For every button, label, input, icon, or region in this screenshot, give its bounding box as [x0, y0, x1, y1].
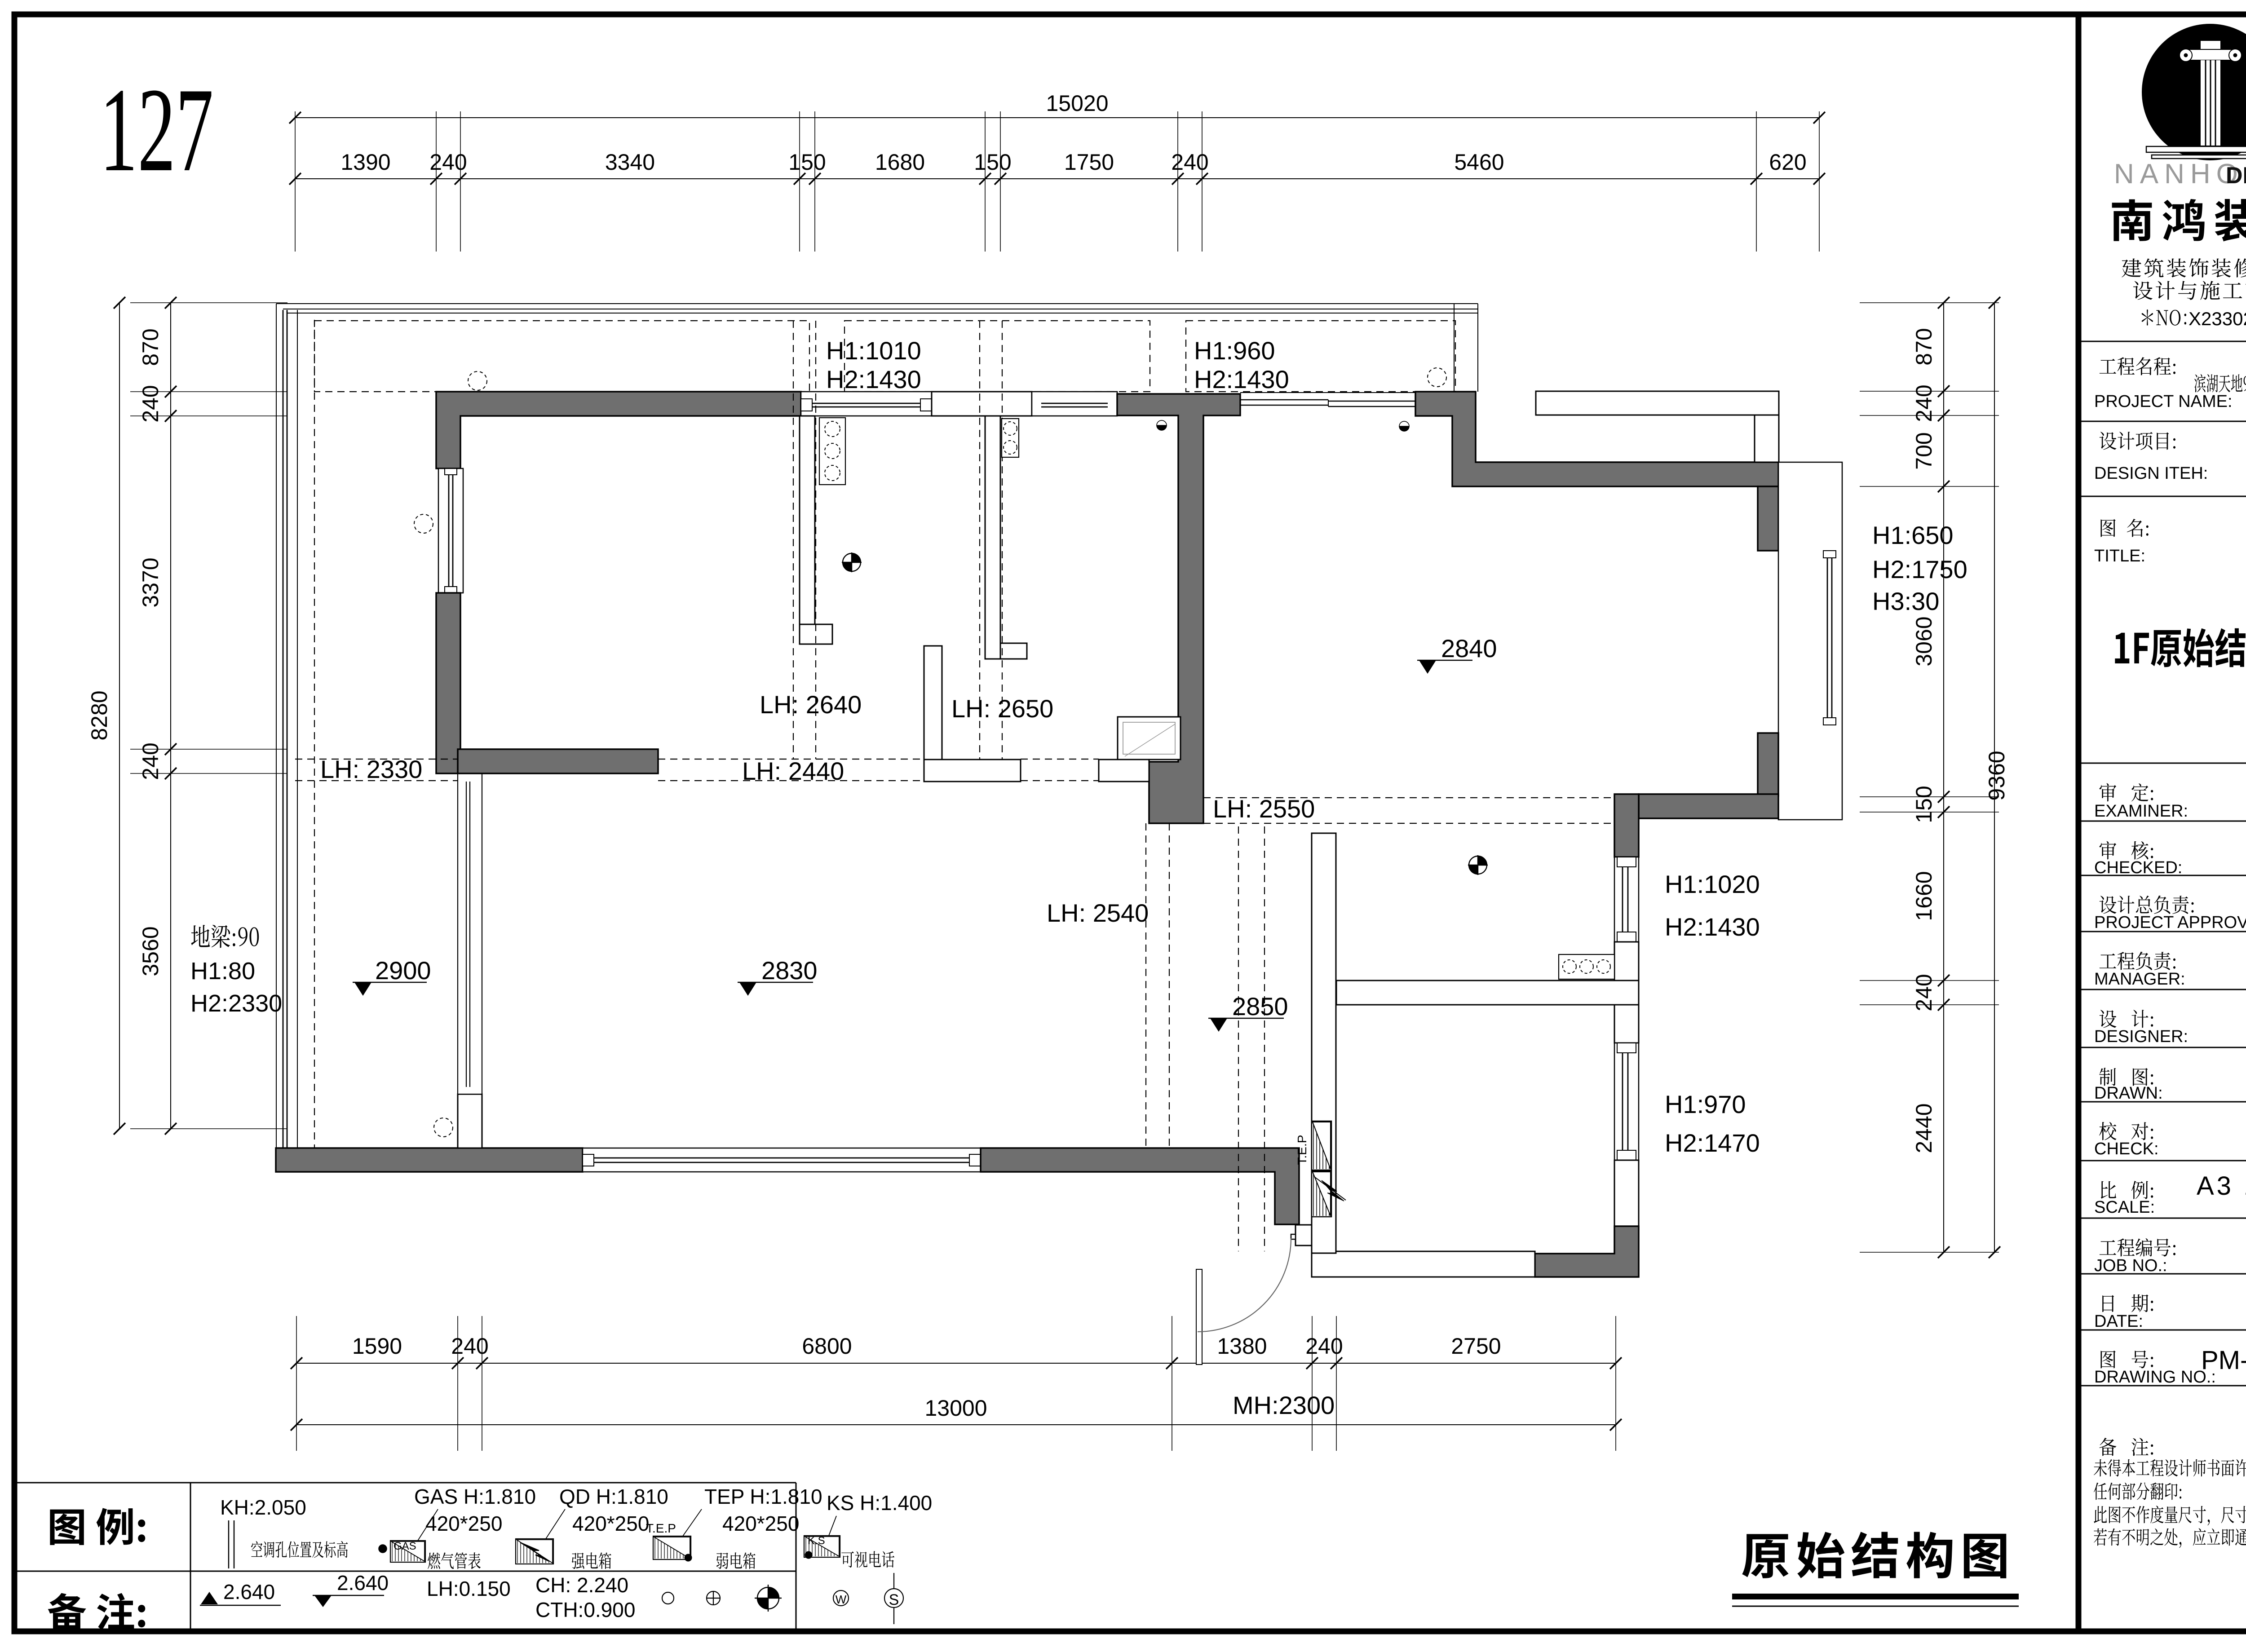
- svg-text:DESIGN ITEH:: DESIGN ITEH:: [2094, 464, 2208, 483]
- svg-text:LH: 2640: LH: 2640: [760, 690, 862, 719]
- svg-text:KS H:1.400: KS H:1.400: [827, 1491, 932, 1515]
- svg-text:CTH:0.900: CTH:0.900: [535, 1598, 635, 1621]
- svg-text:6800: 6800: [802, 1334, 852, 1359]
- svg-text:CHECK:: CHECK:: [2094, 1140, 2159, 1158]
- svg-text:2440: 2440: [1911, 1103, 1937, 1153]
- svg-text:DESIGN: DESIGN: [2226, 163, 2246, 189]
- svg-text:240: 240: [1911, 974, 1937, 1011]
- svg-text:2750: 2750: [1451, 1334, 1501, 1359]
- svg-text:870: 870: [138, 328, 163, 366]
- svg-text:H2:1430: H2:1430: [1665, 913, 1760, 941]
- svg-text:SCALE:: SCALE:: [2094, 1198, 2155, 1217]
- svg-text:H2:1430: H2:1430: [1194, 365, 1289, 393]
- svg-text:H2:2330: H2:2330: [190, 990, 282, 1017]
- svg-text:H2:1470: H2:1470: [1665, 1129, 1760, 1157]
- svg-text:H1:650: H1:650: [1872, 521, 1954, 549]
- svg-text:K.S: K.S: [808, 1535, 825, 1547]
- svg-text:CHECKED:: CHECKED:: [2094, 858, 2182, 877]
- svg-text:LH: 2330: LH: 2330: [320, 755, 422, 783]
- svg-text:150: 150: [1911, 786, 1937, 823]
- svg-text:GAS: GAS: [393, 1540, 416, 1552]
- svg-text:150: 150: [974, 150, 1011, 175]
- svg-text:8280: 8280: [87, 690, 112, 740]
- svg-text:DATE:: DATE:: [2094, 1312, 2143, 1331]
- svg-text:420*250: 420*250: [425, 1512, 502, 1535]
- svg-text:JOB NO.:: JOB NO.:: [2094, 1256, 2167, 1275]
- svg-text:T.E.P: T.E.P: [646, 1521, 676, 1535]
- svg-text:PROJECT APPROVED:: PROJECT APPROVED:: [2094, 913, 2246, 932]
- svg-text:15020: 15020: [1046, 91, 1108, 116]
- svg-text:H2:1750: H2:1750: [1872, 555, 1967, 583]
- svg-text:3370: 3370: [138, 557, 163, 607]
- svg-text:1380: 1380: [1217, 1334, 1267, 1359]
- svg-text:H2:1430: H2:1430: [826, 365, 921, 393]
- svg-text:5460: 5460: [1454, 150, 1504, 175]
- svg-text:3060: 3060: [1911, 616, 1937, 666]
- svg-text:H1:1010: H1:1010: [826, 336, 921, 365]
- svg-text:TEP H:1.810: TEP H:1.810: [704, 1485, 822, 1508]
- svg-text:GAS H:1.810: GAS H:1.810: [414, 1485, 536, 1508]
- svg-text:420*250: 420*250: [722, 1512, 799, 1535]
- svg-text:2.640: 2.640: [223, 1580, 275, 1603]
- svg-text:870: 870: [1911, 328, 1937, 365]
- svg-text:700: 700: [1911, 432, 1937, 469]
- svg-text:240: 240: [1911, 384, 1937, 422]
- svg-text:3560: 3560: [138, 926, 163, 976]
- svg-text:T.E.P: T.E.P: [1295, 1135, 1309, 1165]
- svg-text:420*250: 420*250: [572, 1512, 649, 1535]
- svg-text:EXAMINER:: EXAMINER:: [2094, 802, 2188, 821]
- svg-text:1750: 1750: [1064, 150, 1114, 175]
- svg-text:9360: 9360: [1984, 751, 2009, 800]
- svg-text:620: 620: [1769, 150, 1806, 175]
- svg-text:2900: 2900: [375, 956, 431, 985]
- svg-text:240: 240: [429, 150, 467, 175]
- svg-text:DRAWING NO.:: DRAWING NO.:: [2094, 1368, 2216, 1387]
- svg-text:DESIGNER:: DESIGNER:: [2094, 1027, 2188, 1046]
- svg-text:2850: 2850: [1232, 992, 1288, 1020]
- svg-text:QD H:1.810: QD H:1.810: [559, 1485, 668, 1508]
- svg-text:MANAGER:: MANAGER:: [2094, 970, 2185, 989]
- svg-text:LH: 2540: LH: 2540: [1047, 899, 1149, 927]
- svg-text:H3:30: H3:30: [1872, 587, 1939, 615]
- svg-text:150: 150: [788, 150, 826, 175]
- svg-text:2.640: 2.640: [337, 1571, 389, 1595]
- svg-text:A3 1:35: A3 1:35: [2197, 1171, 2246, 1201]
- svg-text:S: S: [889, 1591, 899, 1608]
- svg-text:H1:970: H1:970: [1665, 1090, 1746, 1118]
- svg-text:X233021396: X233021396: [2189, 308, 2246, 329]
- svg-text:TITLE:: TITLE:: [2094, 547, 2145, 565]
- svg-text:H1:1020: H1:1020: [1665, 870, 1760, 898]
- svg-text:LH: 2440: LH: 2440: [742, 757, 844, 785]
- svg-text:1660: 1660: [1911, 871, 1937, 921]
- svg-text:1390: 1390: [340, 150, 390, 175]
- svg-text:PM-01: PM-01: [2201, 1346, 2246, 1375]
- svg-text:1680: 1680: [875, 150, 925, 175]
- svg-text:LH: 2650: LH: 2650: [951, 694, 1053, 723]
- svg-text:PROJECT NAME:: PROJECT NAME:: [2094, 392, 2233, 411]
- svg-text:1590: 1590: [352, 1334, 402, 1359]
- svg-text:W: W: [836, 1593, 847, 1606]
- svg-text:H1:960: H1:960: [1194, 336, 1275, 365]
- svg-text:LH: 2550: LH: 2550: [1213, 795, 1315, 823]
- svg-text:3340: 3340: [605, 150, 655, 175]
- svg-text:H1:80: H1:80: [190, 958, 255, 985]
- svg-text:240: 240: [1305, 1334, 1343, 1359]
- svg-text:KH:2.050: KH:2.050: [220, 1496, 306, 1519]
- svg-text:240: 240: [138, 385, 163, 422]
- svg-text:2840: 2840: [1441, 634, 1497, 663]
- svg-text:127: 127: [100, 63, 213, 197]
- svg-text:240: 240: [1171, 150, 1208, 175]
- svg-text:DRAWN:: DRAWN:: [2094, 1084, 2163, 1103]
- svg-text:CH: 2.240: CH: 2.240: [535, 1573, 628, 1597]
- svg-text:LH:0.150: LH:0.150: [427, 1577, 511, 1600]
- svg-text:240: 240: [138, 742, 163, 780]
- svg-text:2830: 2830: [761, 956, 818, 985]
- svg-text:13000: 13000: [924, 1396, 987, 1421]
- svg-text:MH:2300: MH:2300: [1233, 1391, 1335, 1419]
- svg-text:240: 240: [451, 1334, 488, 1359]
